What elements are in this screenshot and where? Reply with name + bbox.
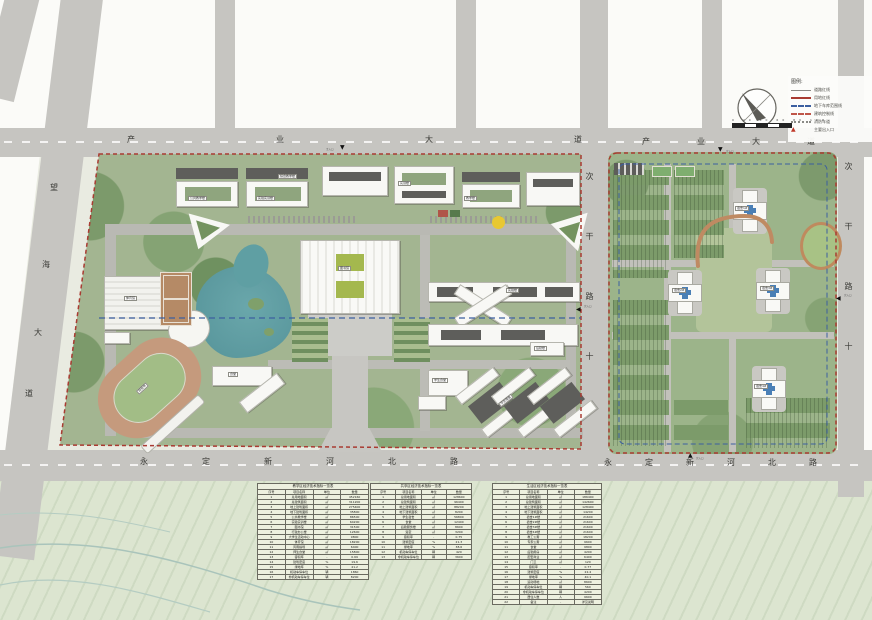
scale-segments: [732, 123, 792, 128]
road-label-wanghai-1: 望: [50, 182, 58, 193]
building-label: 宿舍2#: [672, 288, 686, 293]
entrance-marker-south: ▲: [688, 453, 693, 459]
building-label: 综合教学楼: [278, 174, 297, 179]
building-label: 实训楼: [398, 181, 411, 186]
entrance-marker-north-2: ▼: [718, 147, 723, 153]
legend-swatch-red-solid: [791, 97, 811, 99]
water-sketch-2: [0, 580, 210, 612]
building-label: 后勤楼: [534, 346, 547, 351]
legend-item-road-redline: 道路红线: [791, 86, 869, 94]
entrance-label-north-2: 次入口: [726, 149, 734, 153]
road-label-wanghai-2: 海: [42, 259, 50, 270]
terracotta-loop-path: [697, 216, 772, 266]
entrance-marker-east-right: ◀: [836, 296, 841, 302]
building-label: 学生食堂: [432, 378, 448, 383]
scale-bar: 0 20 40 60 80 100: [732, 118, 828, 128]
building-label: 食堂: [228, 372, 238, 377]
building-label: 教学楼: [464, 196, 477, 201]
scale-ticks: 0 20 40 60 80 100: [732, 118, 828, 122]
master-plan-canvas: 产业大道 产业大道 永定新河北路 永定新河北路 望 海 大 道 次干路十 次干路…: [0, 0, 872, 620]
building-label: 宿舍4#: [754, 384, 768, 389]
entrance-marker-north-main: ▼: [340, 145, 345, 151]
legend-item-garage-line: 地下车库范围线: [791, 102, 869, 110]
building-label: 宿舍3#: [760, 286, 774, 291]
road-label-chanye-west: 产业大道: [127, 134, 723, 145]
road-label-cigan-middle: 次干路十: [584, 172, 595, 412]
legend-title: 图例:: [791, 78, 869, 85]
legend-swatch-red-dashed: [791, 113, 811, 115]
road-label-wanghai-4: 道: [25, 388, 33, 399]
building-label: 实验楼: [506, 288, 519, 293]
legend-swatch-thin-line: [791, 90, 811, 91]
entrance-marker-east-left: ◀: [576, 307, 581, 313]
table-indicators-shared: 共享区经济技术指标一览表序号项目名称单位数量1总用地面积㎡1286002总建筑面…: [370, 483, 472, 560]
water-sketch-3: [0, 513, 170, 532]
building-label: 图书馆: [338, 266, 351, 271]
table-indicators-living: 生活区经济技术指标一览表序号项目名称单位数量1总用地面积㎡1864002总建筑面…: [492, 483, 602, 605]
table-indicators-teaching: 教学区经济技术指标一览表序号项目名称单位数量1总用地面积㎡4521602总建筑面…: [257, 483, 369, 580]
legend-box: 图例: 道路红线 用地红线 地下车库范围线 建筑控制线 消防车道 ▲ 主要出入口: [788, 76, 872, 142]
legend-item-control-line: 建筑控制线: [791, 110, 869, 118]
entrance-label-south: 次入口: [696, 456, 704, 460]
entrance-label-north-main: 主入口: [326, 147, 334, 151]
building-label: 公共教学楼: [188, 196, 207, 201]
road-label-yongding-west: 永定新河北路: [140, 456, 512, 467]
building-label: 实验实训楼: [256, 196, 275, 201]
building-label: 体育馆: [124, 296, 137, 301]
entrance-label-east-right: 次入口: [844, 293, 852, 297]
legend-item-site-redline: 用地红线: [791, 94, 869, 102]
entrance-label-east-left: 次入口: [584, 304, 592, 308]
blue-control-line-right: [619, 164, 827, 444]
building-label: 宿舍1#: [735, 206, 749, 211]
red-boundary-right-campus: [609, 153, 836, 453]
road-label-cigan-east: 次干路十: [843, 162, 854, 402]
road-label-yongding-east: 永定新河北路: [604, 457, 850, 468]
road-label-wanghai-3: 大: [34, 327, 42, 338]
legend-swatch-blue-dashed: [791, 105, 811, 107]
